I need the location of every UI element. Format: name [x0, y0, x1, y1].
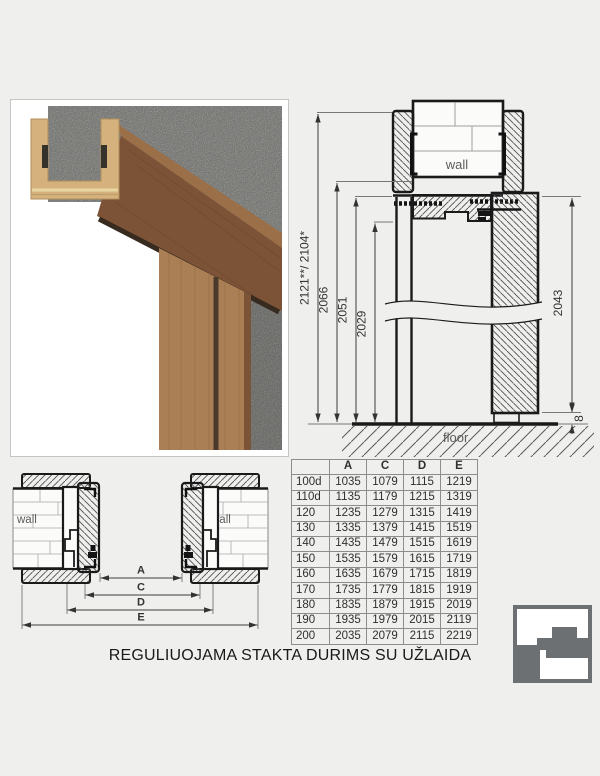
table-cell: 1815	[404, 583, 441, 598]
table-cell	[292, 460, 330, 475]
table-cell: 1319	[441, 490, 478, 505]
table-cell: 1279	[367, 506, 404, 521]
right-seal-2	[186, 545, 191, 551]
page-title: REGULIUOJAMA STAKTA DURIMS SU UŽLAIDA	[0, 647, 580, 665]
left-seal-2	[91, 545, 96, 551]
table-cell: 1415	[404, 521, 441, 536]
table-cell: 1679	[367, 567, 404, 582]
table-cell: 1315	[404, 506, 441, 521]
table-cell: 2219	[441, 629, 478, 644]
table-cell: 1779	[367, 583, 404, 598]
table-cell: 120	[292, 506, 330, 521]
table-row: ACDE	[292, 460, 478, 475]
table-cell: 1235	[330, 506, 367, 521]
table-cell: 130	[292, 521, 330, 536]
table-cell: 170	[292, 583, 330, 598]
brand-logo	[513, 605, 592, 683]
table-cell: 140	[292, 536, 330, 551]
dim-label-2051: 2051	[336, 296, 350, 323]
table-row: 1801835187919152019	[292, 598, 478, 613]
table-cell: 1219	[441, 475, 478, 490]
dim-label-overall: 2121**/ 2104*	[298, 231, 312, 305]
right-seal	[184, 552, 193, 558]
table-cell: 180	[292, 598, 330, 613]
table-cell: C	[367, 460, 404, 475]
table-cell: 190	[292, 613, 330, 628]
left-panel	[63, 487, 78, 569]
rebate-seal	[478, 211, 491, 216]
table-cell: D	[404, 460, 441, 475]
adjustment-slot-left	[42, 145, 48, 168]
door-bottom-edge	[494, 414, 519, 423]
dim-label-c: C	[137, 582, 145, 594]
dim-label-d: D	[137, 597, 145, 609]
table-row: 2002035207921152219	[292, 629, 478, 644]
table-cell: 1915	[404, 598, 441, 613]
table-cell: 200	[292, 629, 330, 644]
table-cell: 2079	[367, 629, 404, 644]
wall-label: wall	[445, 157, 469, 172]
table-cell: 1419	[441, 506, 478, 521]
table-cell: 1919	[441, 583, 478, 598]
table-cell: 1635	[330, 567, 367, 582]
table-cell: 1335	[330, 521, 367, 536]
dimension-table: ACDE 100d1035107911151219110d11351179121…	[291, 459, 478, 645]
table-cell: 1579	[367, 552, 404, 567]
table-row: 1501535157916151719	[292, 552, 478, 567]
table-cell: 1535	[330, 552, 367, 567]
table-cell: 1619	[441, 536, 478, 551]
table-cell: 1935	[330, 613, 367, 628]
table-cell: 2019	[441, 598, 478, 613]
table-cell: 100d	[292, 475, 330, 490]
frame-corner-render	[17, 106, 282, 450]
table-cell: 2035	[330, 629, 367, 644]
table-cell: 1719	[441, 552, 478, 567]
table-cell: 160	[292, 567, 330, 582]
logo-square	[517, 645, 540, 679]
vertical-section-drawing: wall floor	[290, 90, 600, 472]
table-row: 1201235127913151419	[292, 506, 478, 521]
dim-label-door-height: 2043	[551, 289, 565, 316]
floor-label: floor	[443, 430, 469, 445]
table-row: 1601635167917151819	[292, 567, 478, 582]
table-cell: 1479	[367, 536, 404, 551]
table-cell: 2115	[404, 629, 441, 644]
table-row: 1701735177918151919	[292, 583, 478, 598]
table-cell: 2119	[441, 613, 478, 628]
table-cell: 1379	[367, 521, 404, 536]
dim-label-2029: 2029	[355, 310, 369, 337]
table-header: ACDE	[292, 460, 478, 475]
rebate-seal-2	[478, 217, 486, 221]
dim-label-e: E	[137, 612, 144, 624]
dim-label-floor-gap: 8	[572, 415, 586, 422]
right-panel	[203, 487, 218, 569]
table-cell: 1435	[330, 536, 367, 551]
table-cell: 1715	[404, 567, 441, 582]
horizontal-section-drawing: wall wall A C D E	[0, 462, 292, 644]
table-row: 110d1135117912151319	[292, 490, 478, 505]
table-cell: E	[441, 460, 478, 475]
table-cell: 150	[292, 552, 330, 567]
door-leaf-section	[492, 193, 538, 413]
left-seal	[88, 552, 97, 558]
table-cell: 1515	[404, 536, 441, 551]
table-cell: 1135	[330, 490, 367, 505]
table-cell: 1735	[330, 583, 367, 598]
table-body: 100d1035107911151219110d1135117912151319…	[292, 475, 478, 644]
table-row: 100d1035107911151219	[292, 475, 478, 490]
frame-corner-photo	[10, 99, 289, 457]
table-cell: 2015	[404, 613, 441, 628]
table-row: 1301335137914151519	[292, 521, 478, 536]
table-row: 1901935197920152119	[292, 613, 478, 628]
table-cell: 1035	[330, 475, 367, 490]
table-cell: 110d	[292, 490, 330, 505]
table-cell: 1979	[367, 613, 404, 628]
dim-label-2066: 2066	[317, 286, 331, 313]
table-cell: 1519	[441, 521, 478, 536]
adjustment-slot-right	[101, 145, 107, 168]
table-cell: 1819	[441, 567, 478, 582]
table-cell: 1079	[367, 475, 404, 490]
spec-sheet: wall floor	[0, 0, 600, 776]
table-cell: 1215	[404, 490, 441, 505]
table-cell: A	[330, 460, 367, 475]
wall-label-left: wall	[16, 514, 37, 526]
table-row: 1401435147915151619	[292, 536, 478, 551]
dim-label-a: A	[137, 565, 145, 577]
jamb-edge-shadow	[244, 291, 251, 450]
table-cell: 1115	[404, 475, 441, 490]
table-cell: 1879	[367, 598, 404, 613]
table-cell: 1179	[367, 490, 404, 505]
table-cell: 1835	[330, 598, 367, 613]
table-cell: 1615	[404, 552, 441, 567]
